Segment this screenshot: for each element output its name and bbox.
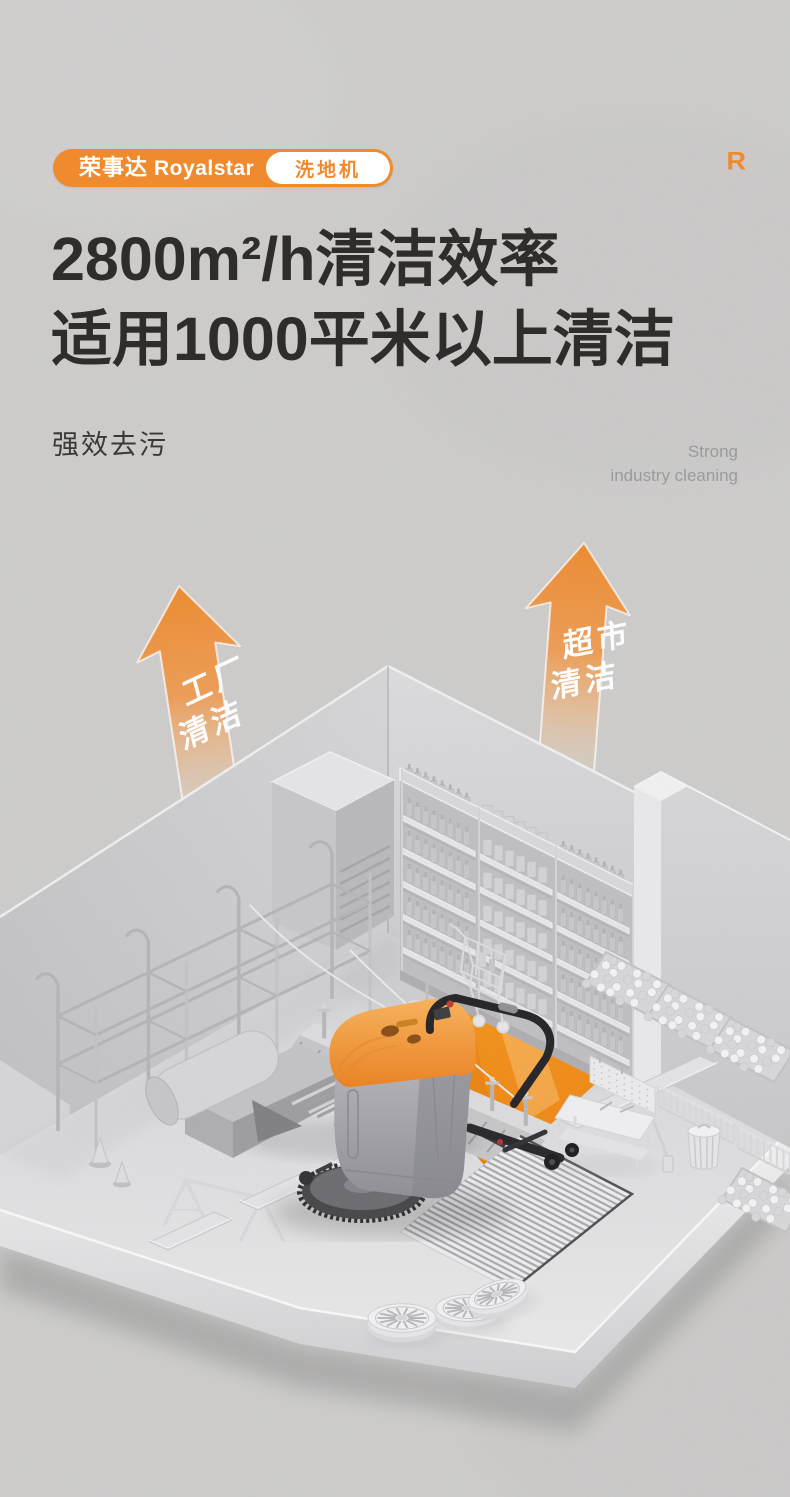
subheading-en-line2: industry cleaning xyxy=(610,464,738,488)
brand-badge: 荣事达 Royalstar 洗地机 xyxy=(53,149,393,187)
product-category-label: 洗地机 xyxy=(295,155,361,182)
subheading-en-line1: Strong xyxy=(610,440,738,464)
brand-logo-cn: 荣事达 xyxy=(79,157,148,179)
brand-r-mark: R xyxy=(727,147,747,176)
product-banner: 工厂 清洁 超市 清洁 xyxy=(0,0,790,1497)
headline-line2: 适用1000平米以上清洁 xyxy=(51,299,675,379)
headline-line1: 2800m²/h清洁效率 xyxy=(51,219,675,299)
subheading-en: Strong industry cleaning xyxy=(610,440,738,488)
subheading-cn: 强效去污 xyxy=(52,423,168,462)
headline: 2800m²/h清洁效率 适用1000平米以上清洁 xyxy=(51,219,675,379)
brand-logo-en: Royalstar xyxy=(154,158,254,179)
product-category-pill: 洗地机 xyxy=(266,152,390,184)
